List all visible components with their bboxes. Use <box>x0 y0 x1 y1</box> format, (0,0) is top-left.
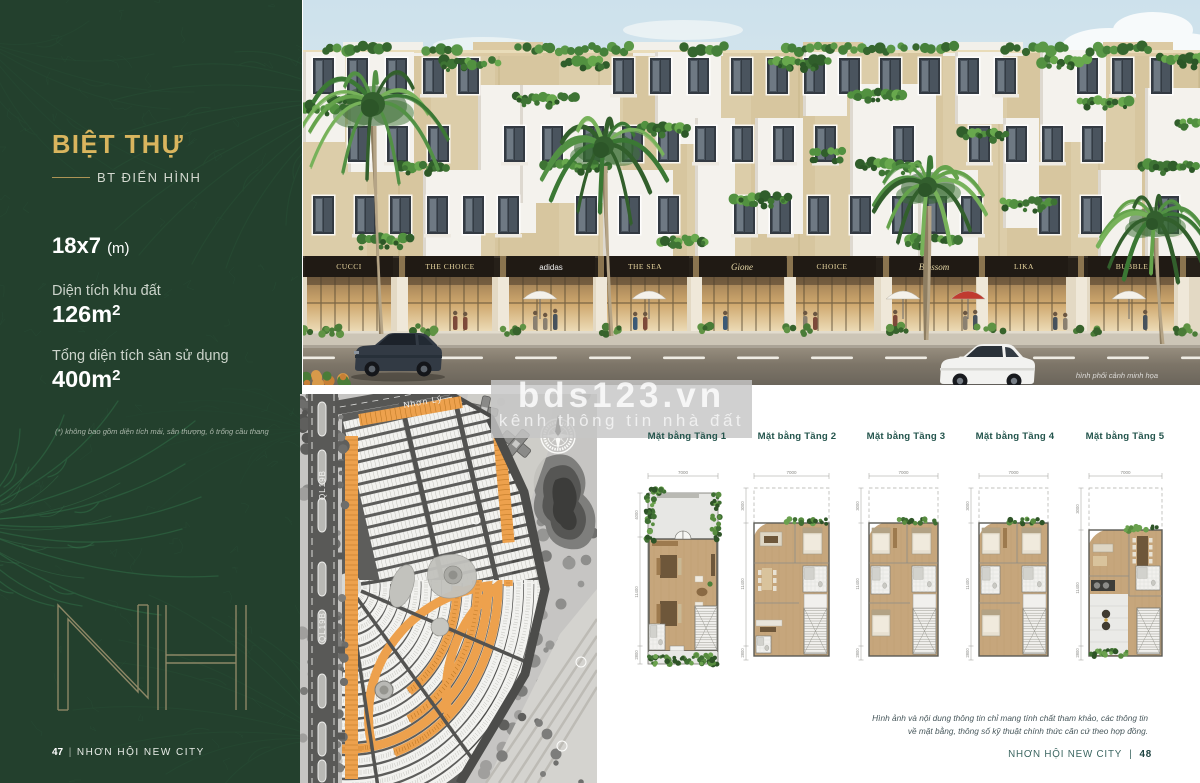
svg-text:CHOICE: CHOICE <box>817 262 848 271</box>
svg-text:Gione: Gione <box>731 262 753 272</box>
svg-text:11400: 11400 <box>634 586 639 598</box>
svg-text:Mặt bằng Tầng 1: Mặt bằng Tầng 1 <box>648 430 727 442</box>
svg-text:THE CHOICE: THE CHOICE <box>425 262 474 271</box>
svg-text:11400: 11400 <box>1075 582 1080 594</box>
svg-text:LIKA: LIKA <box>1014 262 1034 271</box>
svg-text:11400: 11400 <box>855 578 860 590</box>
svg-text:Mặt bằng Tầng 2: Mặt bằng Tầng 2 <box>758 430 837 442</box>
svg-text:2800: 2800 <box>1075 648 1080 658</box>
svg-text:QL19B: QL19B <box>318 612 327 642</box>
svg-text:Mặt bằng Tầng 3: Mặt bằng Tầng 3 <box>867 430 946 442</box>
svg-text:7000: 7000 <box>898 470 909 475</box>
svg-text:11400: 11400 <box>965 578 970 590</box>
svg-text:7000: 7000 <box>1120 470 1131 475</box>
svg-text:hình phối cảnh minh họa: hình phối cảnh minh họa <box>1076 371 1158 380</box>
svg-text:7000: 7000 <box>786 470 797 475</box>
svg-text:CUCCI: CUCCI <box>336 262 361 271</box>
svg-text:2800: 2800 <box>740 648 745 658</box>
svg-text:4000: 4000 <box>634 510 639 520</box>
svg-text:3000: 3000 <box>1075 504 1080 514</box>
svg-text:QL19B: QL19B <box>318 470 327 500</box>
svg-text:Mặt bằng Tầng 4: Mặt bằng Tầng 4 <box>976 430 1055 442</box>
svg-text:BUBBLE: BUBBLE <box>1116 262 1149 271</box>
svg-text:7000: 7000 <box>1008 470 1019 475</box>
svg-text:3000: 3000 <box>965 501 970 511</box>
svg-text:2800: 2800 <box>965 648 970 658</box>
svg-text:adidas: adidas <box>539 263 563 272</box>
svg-text:THE SEA: THE SEA <box>628 262 662 271</box>
svg-text:7000: 7000 <box>678 470 689 475</box>
svg-text:3000: 3000 <box>740 501 745 511</box>
svg-text:11400: 11400 <box>740 578 745 590</box>
svg-text:2800: 2800 <box>855 648 860 658</box>
svg-text:2800: 2800 <box>634 650 639 660</box>
svg-text:Mặt bằng Tầng 5: Mặt bằng Tầng 5 <box>1086 430 1165 442</box>
svg-text:3000: 3000 <box>855 501 860 511</box>
